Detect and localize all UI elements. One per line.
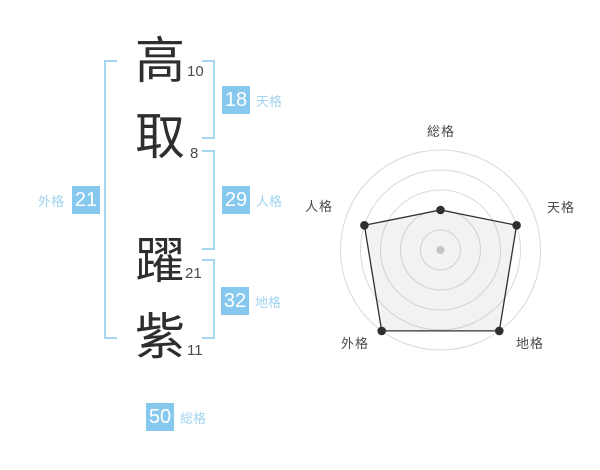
gaikaku-score-label: 外格 [38, 195, 64, 208]
jinkaku-score-label: 人格 [256, 195, 282, 208]
name-character-4: 紫 [134, 312, 186, 362]
name-character-3: 躍 [134, 236, 186, 286]
chikaku-score-label: 地格 [255, 296, 281, 309]
chikaku-score-badge: 32 [221, 287, 249, 315]
gaikaku-score-badge: 21 [72, 186, 100, 214]
stroke-count-3: 21 [185, 266, 202, 281]
jinkaku-score-badge: 29 [222, 186, 250, 214]
radar-data-point [436, 206, 445, 215]
radar-data-point [512, 221, 521, 230]
name-character-1: 高 [134, 36, 186, 86]
stroke-count-2: 8 [190, 146, 198, 161]
radar-axis-label-gaikaku: 外格 [341, 337, 369, 350]
radar-data-point [377, 327, 386, 336]
radar-center-dot [437, 246, 445, 254]
soukaku-score-label: 総格 [180, 412, 206, 425]
radar-data-point [495, 327, 504, 336]
radar-data-polygon [364, 210, 516, 331]
name-character-2: 取 [134, 112, 186, 162]
chikaku-bracket [202, 259, 215, 339]
gaikaku-bracket [104, 60, 117, 339]
radar-axis-label-tenkaku: 天格 [547, 201, 575, 214]
jinkaku-bracket [202, 150, 215, 250]
radar-axis-label-jinkaku: 人格 [305, 200, 333, 213]
stroke-count-1: 10 [187, 64, 204, 79]
stroke-count-4: 11 [187, 343, 203, 358]
tenkaku-bracket [202, 60, 215, 139]
tenkaku-score-label: 天格 [256, 95, 282, 108]
radar-axis-label-chikaku: 地格 [516, 337, 544, 350]
radar-axis-label-soukaku: 総格 [427, 125, 455, 138]
tenkaku-score-badge: 18 [222, 86, 250, 114]
name-analysis-panel: 高 取 躍 紫 10 8 21 11 18 天格 29 人格 32 地格 21 … [0, 0, 600, 470]
soukaku-score-badge: 50 [146, 403, 174, 431]
radar-data-point [360, 221, 369, 230]
